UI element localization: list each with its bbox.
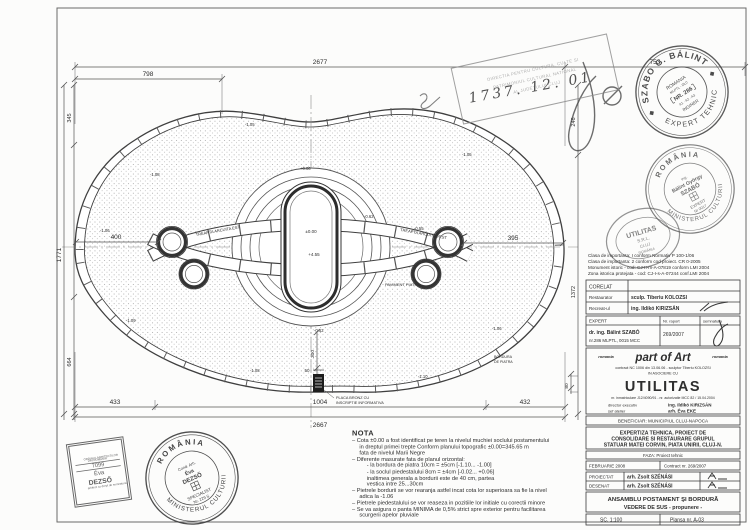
dim-top-left: 798 — [143, 71, 154, 78]
expert-raport: 269/2007 — [663, 332, 684, 338]
curb-label-1: BORDURA — [494, 355, 513, 359]
svg-text:Clasa de importanta: I confo: Clasa de importanta: I conform Normativ … — [588, 253, 695, 258]
nota-title: NOTA — [352, 429, 596, 437]
drawing-sheet: ±0.00 +4.55 PLACA BRONZ CU INSCRIPTIE IN… — [0, 0, 750, 530]
corelat-name-2: ing. Ildikó KIRIZSÁN — [631, 305, 680, 312]
dim-inner-right: 395 — [508, 235, 519, 242]
utilitas-logo: UTILITAS — [625, 379, 701, 395]
handwritten-scribble-small — [420, 94, 440, 109]
corelat-role-2: Recreat-ul — [589, 306, 610, 311]
svg-text:-1.09: -1.09 — [126, 318, 136, 323]
dim-plaque-height: 300 — [310, 350, 316, 358]
sheet-title-line1: ANSAMBLU POSTAMENT ŞI BORDURĂ — [608, 496, 720, 503]
partofart-contract: contract NC 1006 din 13.06.06 - sculptor… — [615, 366, 710, 370]
expert-table: EXPERT Nr. raport semnatura dr. ing. Bál… — [589, 319, 728, 347]
dim-edge-small: 80 — [564, 383, 570, 389]
utilitas-staff: director executiv ing. Ildikó KIRIZSÁN s… — [608, 402, 712, 414]
desenat-signature — [708, 482, 727, 488]
svg-text:-1.05: -1.05 — [245, 122, 255, 127]
partofart-left: romania — [598, 354, 614, 359]
scale: SC. 1:100 — [600, 518, 622, 524]
nota-line: scurgerii apelor pluviale — [359, 513, 596, 519]
dim-bottom-overall: 2667 — [313, 422, 328, 429]
beneficiar: BENEFICIAR: MUNICIPIUL CLUJ-NAPOCA — [618, 419, 709, 424]
svg-text:-1.10: -1.10 — [418, 374, 428, 379]
dim-inner-left: 400 — [111, 234, 122, 241]
dim-bottom-left: 433 — [110, 399, 121, 406]
dim-top-overall: 2677 — [313, 59, 328, 66]
desenat-label: DESENAT — [589, 484, 610, 489]
corelat-role-1: Restaurator — [589, 295, 613, 300]
pedestal: ±0.00 +4.55 — [281, 182, 341, 312]
corelat-header: CORELAT — [589, 285, 612, 291]
svg-text:-0.55: -0.55 — [414, 226, 424, 231]
kirizsan-signature — [700, 302, 728, 311]
utilitas-dir-name: ing. Ildikó KIRIZSÁN — [668, 402, 712, 408]
stamp-oar: ORDINUL ARHITECTILOR DIN ROMÂNIA 7099 Év… — [66, 436, 132, 507]
partofart-block: romania part of Art romania contract NC … — [598, 352, 728, 400]
svg-text:-1.08: -1.08 — [250, 368, 260, 373]
plansa-number: Plansa nr. A-03 — [670, 518, 704, 524]
corelat-table: CORELAT Restaurator sculp. Tiberiu KOLOZ… — [589, 285, 728, 313]
proiectat-name: arh. Zsolt SZÉNÁSI — [627, 473, 673, 481]
dim-left-overall: 1771 — [56, 247, 63, 262]
expert-name: dr. ing. Bálint SZABÓ — [589, 328, 640, 336]
curb-label-2: DE PIATRA — [494, 360, 513, 364]
proiectat-signature — [708, 473, 727, 479]
partofart-right: romania — [712, 354, 728, 359]
faza: FAZA: Proiect tehnic — [643, 453, 684, 458]
partofart-logo: part of Art — [634, 352, 691, 364]
partofart-asociere: IN ASOCIERE CU — [648, 372, 678, 376]
svg-text:-0.62: -0.62 — [364, 214, 374, 219]
utilitas-sef-label: sef atelier — [608, 409, 626, 414]
dim-left-bottom: 664 — [67, 357, 73, 366]
svg-text:-1.08: -1.08 — [150, 172, 160, 177]
expert-name2: nr.286 MLPTL, 0015 MCC — [589, 338, 640, 343]
expert-signature — [714, 320, 728, 346]
svg-text:Monument istoric - cod: CJ-II-: Monument istoric - cod: CJ-II-m-A-07819 … — [588, 265, 710, 270]
dim-bottom-center: 1004 — [313, 399, 328, 406]
plaque-note-line2: INSCRIPTIE INFORMATIVA — [336, 401, 384, 405]
stamp-diamond-left: ◆ — [648, 108, 657, 117]
dim-bottom-right: 432 — [520, 399, 531, 406]
svg-text:Clasa de importanta: 2 confo: Clasa de importanta: 2 conform cod proie… — [588, 259, 701, 264]
dim-right-bottom: 1372 — [571, 286, 577, 298]
utilitas-sef-name: arh. Éva EKE — [668, 407, 696, 414]
utilitas-dir-label: director executiv — [608, 403, 637, 408]
dim-plaque-width: 50 — [304, 368, 310, 373]
date: FEBRUARIE 2008 — [589, 464, 626, 469]
stamp-diamond-right: ◆ — [708, 69, 717, 78]
corelat-name-1: sculp. Tiberiu KOLOZSI — [631, 295, 688, 301]
proiectat-label: PROIECTAT — [589, 475, 614, 480]
sheet-title: ANSAMBLU POSTAMENT ŞI BORDURĂ VEDERE DE … — [608, 496, 720, 511]
svg-text:Zona istorica protejata - cod:: Zona istorica protejata - cod: CJ-I-s-A-… — [588, 271, 709, 276]
paving-label: PAVIMENT PIATRA — [385, 282, 420, 287]
svg-text:-0.62: -0.62 — [314, 328, 324, 333]
nota-lines: – Cota ±0.00 a fost identificat pe teren… — [352, 438, 596, 519]
utilitas-reg: nr. inmatriculare J12/4090/91 - nr. auto… — [611, 396, 715, 400]
contract: Contract nr. 269/2007 — [664, 464, 707, 469]
plaque-note-line1: PLACA BRONZ CU — [336, 396, 369, 400]
desenat-name: arh. Zsolt SZÉNÁSI — [627, 482, 673, 490]
expert-col-raport: Nr. raport — [663, 319, 681, 324]
svg-text:-1.06: -1.06 — [492, 326, 502, 331]
dim-left-top: 345 — [67, 113, 73, 122]
project-title: EXPERTIZA TEHNICA, PROIECT DE CONSOLIDAR… — [604, 431, 723, 449]
svg-text:-1.05: -1.05 — [462, 152, 472, 157]
nota-block: NOTA – Cota ±0.00 a fost identificat pe … — [352, 429, 592, 530]
svg-text:+0.06: +0.06 — [300, 166, 311, 171]
expert-header: EXPERT — [589, 319, 607, 324]
pedestal-level-top: ±0.00 — [305, 229, 317, 234]
importance-classes: Clasa de importanta: I conform Normativ … — [588, 253, 710, 276]
svg-text:-1.06: -1.06 — [100, 228, 110, 233]
pedestal-level-mid: +4.55 — [308, 252, 320, 257]
svg-text:STATUAR MATEI CORVIN, PIATA UN: STATUAR MATEI CORVIN, PIATA UNIRII, CLUJ… — [604, 443, 723, 449]
title-block: Clasa de importanta: I conform Normativ … — [580, 250, 750, 530]
sheet-title-line2: VEDERE DE SUS - propunere - — [624, 505, 703, 511]
